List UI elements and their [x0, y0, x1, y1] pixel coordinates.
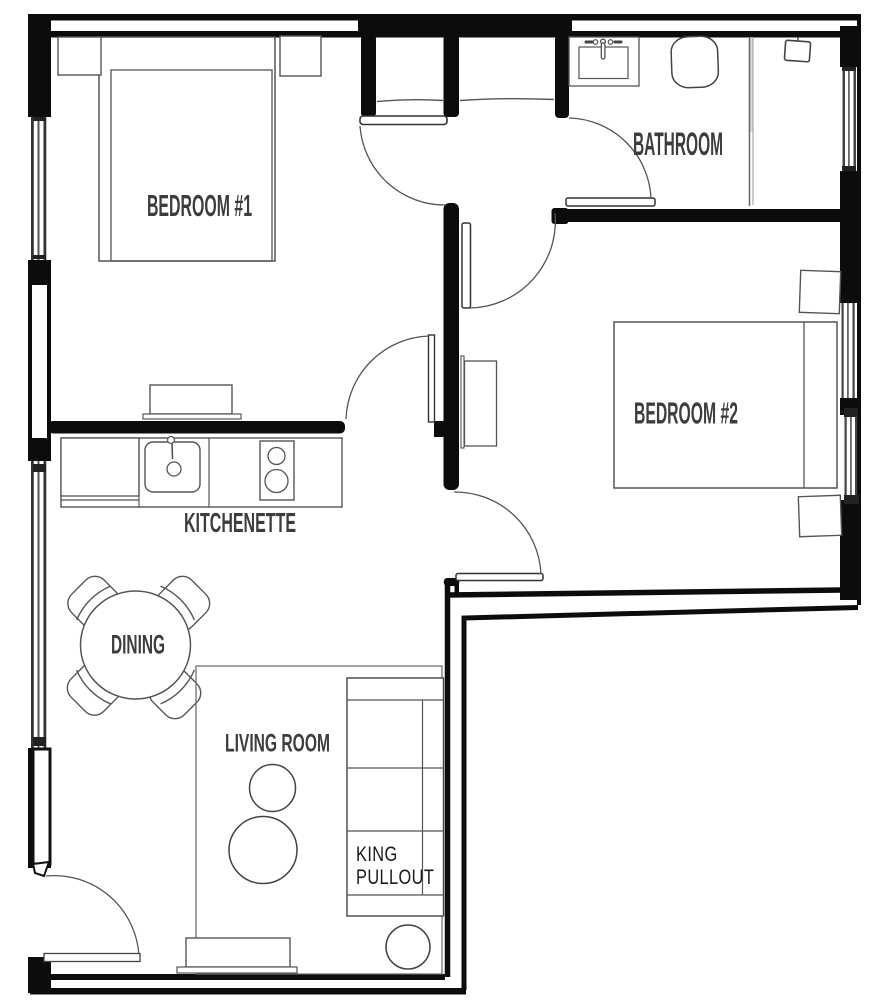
svg-text:BEDROOM #1: BEDROOM #1	[147, 190, 252, 224]
svg-text:KITCHENETTE: KITCHENETTE	[184, 506, 296, 538]
svg-text:KING: KING	[356, 842, 398, 865]
svg-text:DINING: DINING	[111, 629, 165, 660]
svg-text:BEDROOM #2: BEDROOM #2	[634, 397, 738, 431]
svg-text:PULLOUT: PULLOUT	[356, 865, 434, 888]
svg-text:LIVING ROOM: LIVING ROOM	[225, 730, 330, 758]
svg-text:BATHROOM: BATHROOM	[633, 127, 723, 163]
